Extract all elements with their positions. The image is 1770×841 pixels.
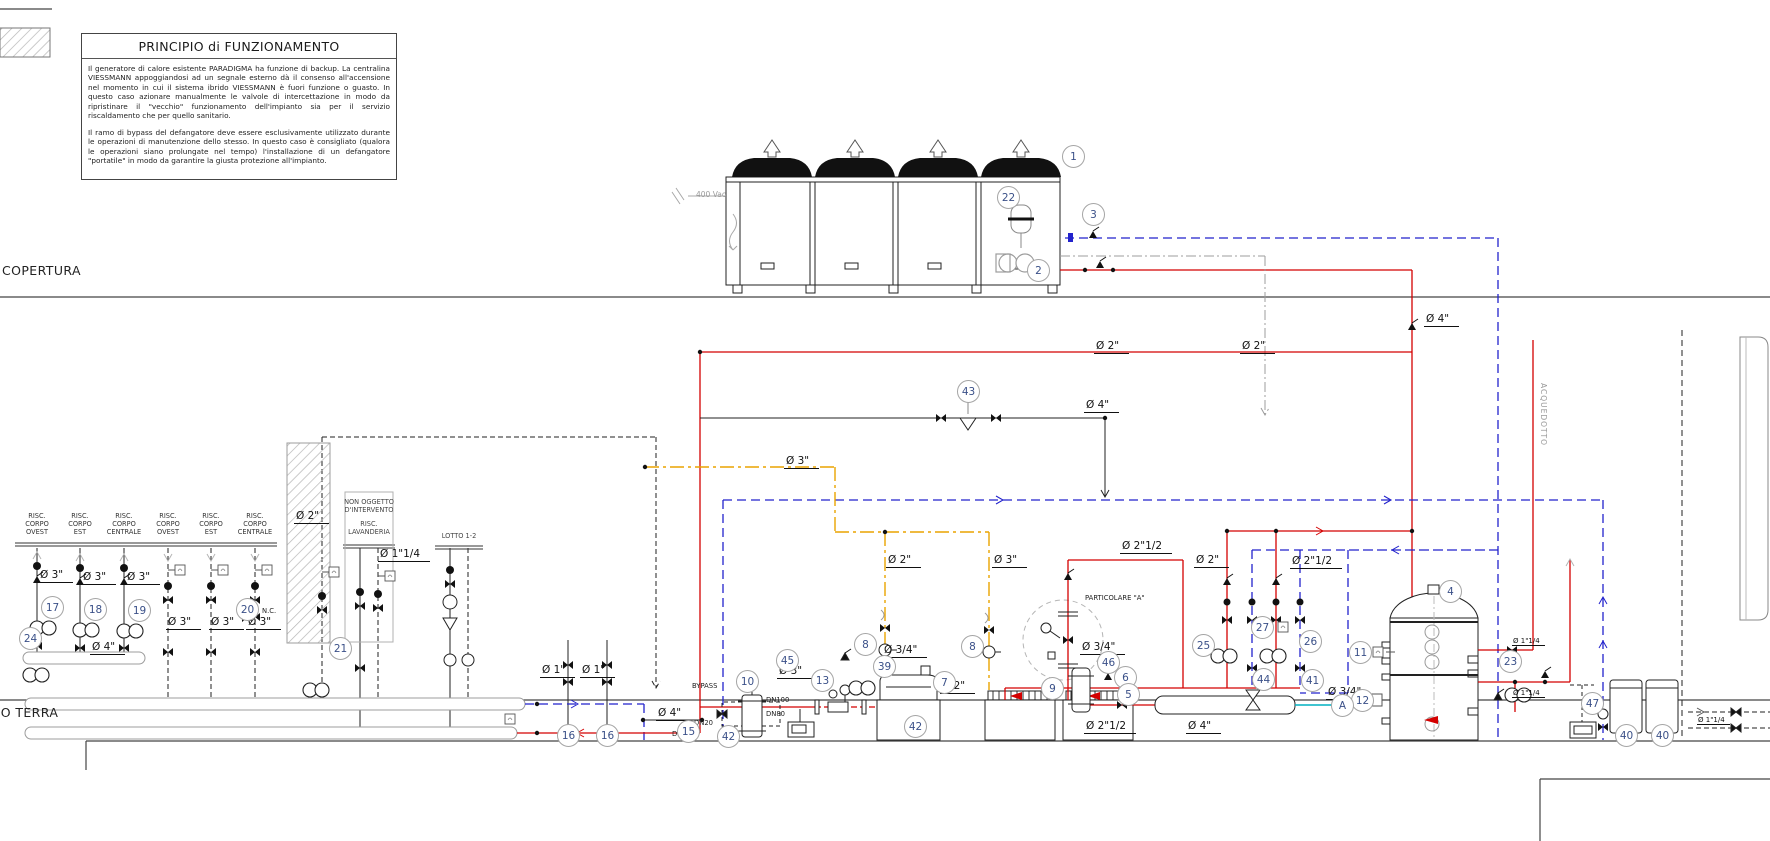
callout-16: 16 <box>596 724 619 747</box>
callout-25: 25 <box>1192 634 1215 657</box>
callout-23: 23 <box>1499 650 1522 673</box>
callout-13: 13 <box>811 669 834 692</box>
pipe-label: Ø 4" <box>90 641 125 655</box>
pipe-label: Ø 2" <box>1194 554 1229 568</box>
callout-A: A <box>1331 694 1354 717</box>
pipe-label: Ø 3" <box>81 571 116 585</box>
pipe-label: Ø 1" <box>580 664 615 678</box>
level-label-ground: PIANO TERRA <box>0 705 58 720</box>
callout-20: 20 <box>236 598 259 621</box>
callout-8: 8 <box>854 633 877 656</box>
callout-40: 40 <box>1615 724 1638 747</box>
box-title: PRINCIPIO di FUNZIONAMENTO <box>82 34 396 59</box>
callout-42: 42 <box>717 725 740 748</box>
callout-41: 41 <box>1301 669 1324 692</box>
shaft-hatched <box>287 443 330 643</box>
circuit-header: RISC. CORPO CENTRALE <box>223 513 287 536</box>
far-right <box>1494 330 1770 740</box>
callout-16: 16 <box>557 724 580 747</box>
pipe-label: Ø 3" <box>125 571 160 585</box>
box-label: NON OGGETTO D'INTERVENTO <box>329 499 409 515</box>
pipe-label: DN100 <box>766 696 789 704</box>
pipe-label: Ø 3" <box>38 569 73 583</box>
callout-26: 26 <box>1299 630 1322 653</box>
callout-11: 11 <box>1349 641 1372 664</box>
legend-hatch <box>0 28 50 57</box>
fans <box>732 140 1061 177</box>
callout-2: 2 <box>1027 259 1050 282</box>
pipe-label: N.C. <box>262 607 276 615</box>
callout-42: 42 <box>904 715 927 738</box>
callout-43: 43 <box>957 380 980 403</box>
callout-27: 27 <box>1251 616 1274 639</box>
pipe-label: PARTICOLARE "A" <box>1085 594 1144 602</box>
callout-46: 46 <box>1097 651 1120 674</box>
pipe-label: Ø 2" <box>886 554 921 568</box>
left-fittings <box>30 552 272 656</box>
pipe-label: Ø 4" <box>1424 313 1459 327</box>
pipe-label: Ø 4" <box>656 707 691 721</box>
pipe-label: Ø 2"1/2 <box>1120 540 1172 554</box>
pipe-label: Ø 3" <box>784 455 819 469</box>
pipe-label: Ø 4" <box>1186 720 1221 734</box>
callout-39: 39 <box>873 655 896 678</box>
pipe-label: Ø 2" <box>1094 340 1129 354</box>
callout-4: 4 <box>1439 580 1462 603</box>
callout-9: 9 <box>1041 677 1064 700</box>
schematic-canvas: { "title_box": { "title": "PRINCIPIO di … <box>0 0 1770 841</box>
callout-40: 40 <box>1651 724 1674 747</box>
function-principle-box: PRINCIPIO di FUNZIONAMENTO Il generatore… <box>81 33 397 180</box>
callout-47: 47 <box>1581 692 1604 715</box>
gas-fittings <box>643 465 1001 658</box>
pipe-label: Ø 3" <box>166 616 201 630</box>
box-paragraph-2: Il ramo di bypass del defangatore deve e… <box>88 128 390 166</box>
pipe-label: DN80 <box>766 710 785 718</box>
pipe-label: Ø 4" <box>1084 399 1119 413</box>
callout-45: 45 <box>776 649 799 672</box>
callout-22: 22 <box>997 186 1020 209</box>
pipe-label: Ø 2"1/2 <box>1290 555 1342 569</box>
pipe-label: Ø 3" <box>992 554 1027 568</box>
callout-10: 10 <box>736 670 759 693</box>
callout-18: 18 <box>84 598 107 621</box>
callout-19: 19 <box>128 599 151 622</box>
pipe-label: BYPASS <box>692 682 717 690</box>
callout-21: 21 <box>329 637 352 660</box>
pipe-label: Ø 1" <box>540 664 575 678</box>
callout-24: 24 <box>19 627 42 650</box>
callout-1: 1 <box>1062 145 1085 168</box>
box-paragraph-1: Il generatore di calore esistente PARADI… <box>88 64 390 121</box>
pipe-label: Ø 2" <box>1240 340 1275 354</box>
callout-17: 17 <box>41 596 64 619</box>
pipe-label: Ø 1"1/4 <box>378 548 430 562</box>
pipe-label: Ø 2" <box>294 510 329 524</box>
callout-5: 5 <box>1117 683 1140 706</box>
callout-3: 3 <box>1082 203 1105 226</box>
level-label-roof: COPERTURA <box>2 263 81 278</box>
box-label: LOTTO 1-2 <box>419 533 499 541</box>
pipe-label: Ø 2"1/2 <box>1084 720 1136 734</box>
pipe-label: Ø 1"1/4 <box>1512 637 1545 646</box>
callout-15: 15 <box>677 720 700 743</box>
pipe-label: Ø 1"1/4 <box>1697 716 1730 725</box>
callout-8: 8 <box>961 635 984 658</box>
pipe-label: 400 Vac <box>696 190 726 199</box>
pipe-label: ACQUEDOTTO <box>1539 383 1548 446</box>
box-label: RISC. LAVANDERIA <box>329 521 409 537</box>
pipe-label: Ø 3" <box>209 616 244 630</box>
callout-44: 44 <box>1252 668 1275 691</box>
callout-7: 7 <box>933 671 956 694</box>
callout-12: 12 <box>1351 689 1374 712</box>
left-risers <box>15 437 660 733</box>
pipe-label: Ø 1"1/4 <box>1512 689 1545 698</box>
